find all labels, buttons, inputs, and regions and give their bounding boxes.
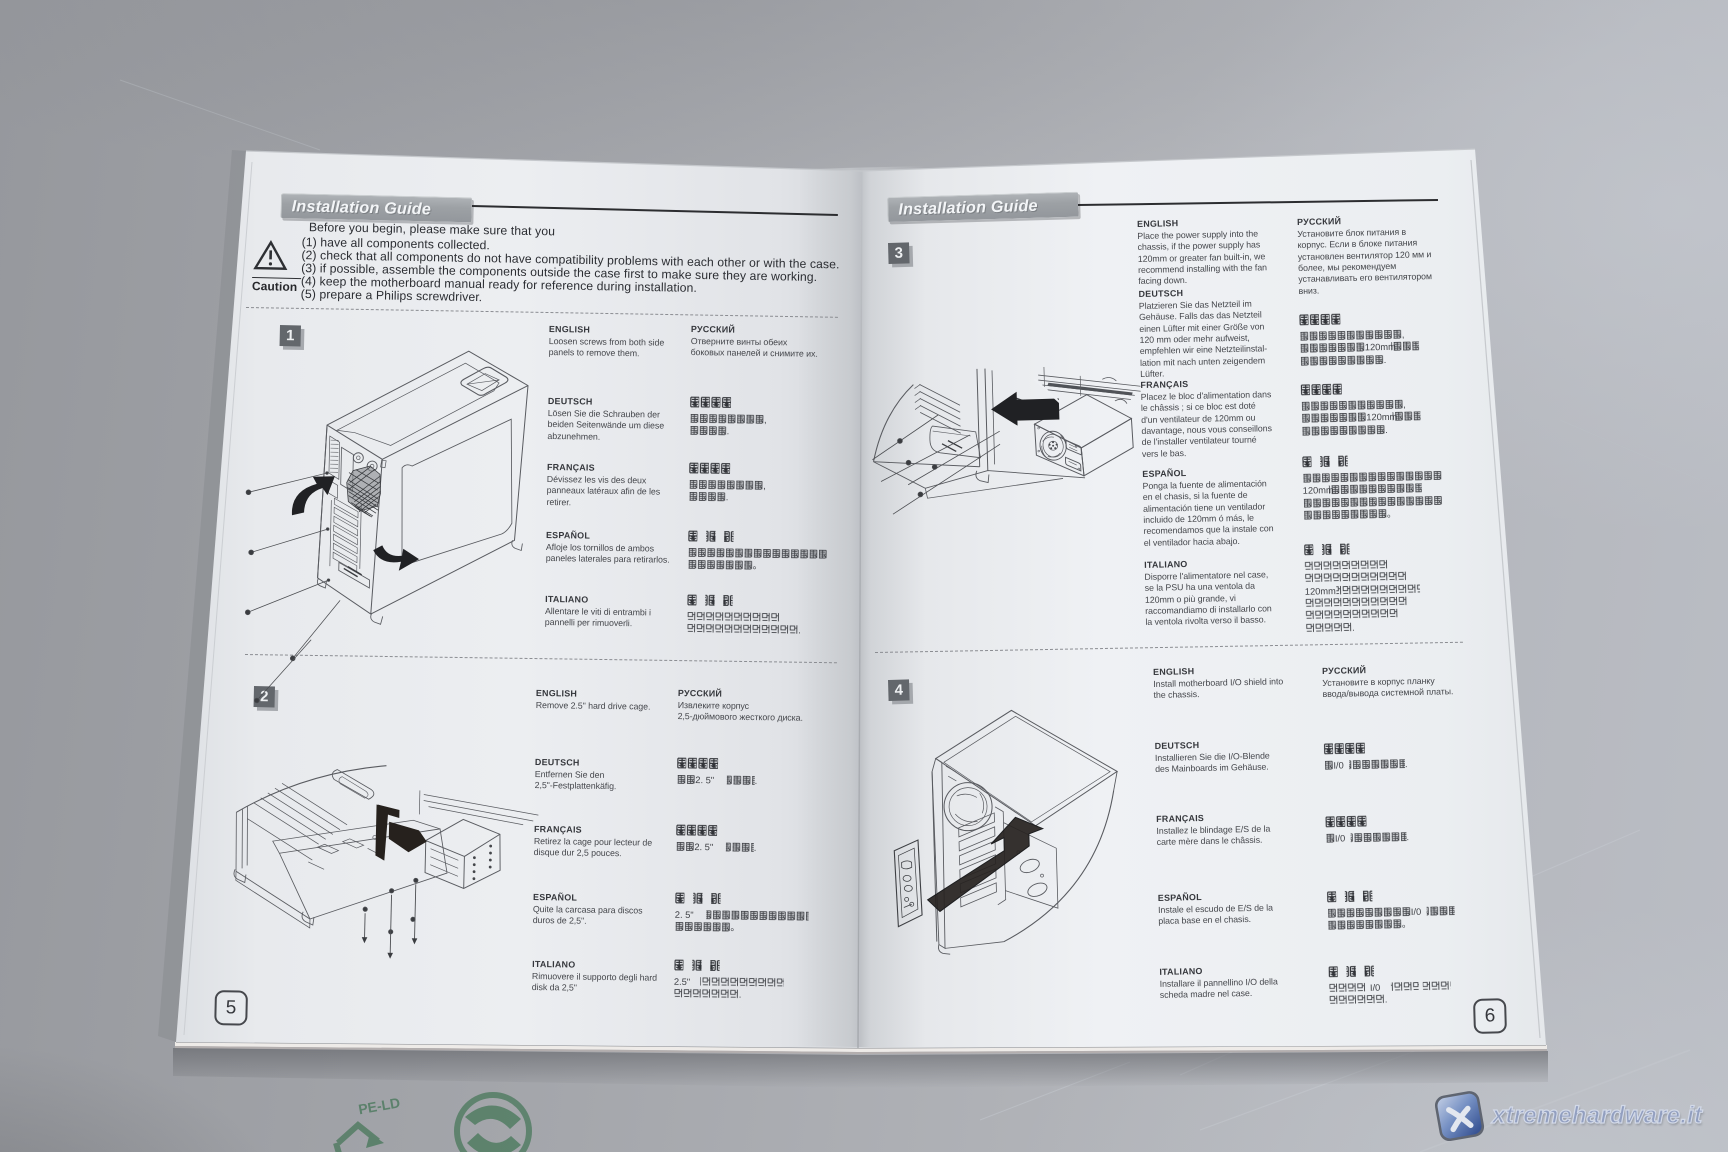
svg-text:.: . <box>1405 759 1408 769</box>
svg-text:,: , <box>763 481 766 491</box>
svg-text:120mm: 120mm <box>1365 342 1396 353</box>
svg-text:.: . <box>739 990 742 1000</box>
svg-text:120mm: 120mm <box>1305 586 1336 597</box>
svg-text:.: . <box>754 843 757 853</box>
svg-text:。: 。 <box>1402 919 1410 929</box>
svg-text:.: . <box>1385 995 1388 1005</box>
svg-text:I/0: I/0 <box>1333 760 1344 770</box>
svg-text:.: . <box>1385 425 1388 435</box>
svg-text:.: . <box>727 427 730 437</box>
svg-text:PE-LD: PE-LD <box>357 1094 401 1117</box>
svg-text:2. 5": 2. 5" <box>675 910 694 920</box>
svg-text:.: . <box>1352 623 1355 633</box>
svg-text:.: . <box>755 776 758 786</box>
svg-text:I/0: I/0 <box>1335 833 1346 843</box>
svg-text:,: , <box>1403 399 1406 409</box>
svg-text:120mm: 120mm <box>1303 485 1334 496</box>
svg-text:2.5": 2.5" <box>674 977 690 987</box>
svg-text:。: 。 <box>730 923 737 933</box>
svg-text:.: . <box>1406 832 1409 842</box>
svg-text:。: 。 <box>1387 509 1395 519</box>
svg-text:,: , <box>1402 329 1405 339</box>
svg-text:.: . <box>1384 355 1387 365</box>
svg-text:。: 。 <box>753 561 760 571</box>
svg-text:,: , <box>764 415 767 425</box>
svg-text:120mm: 120mm <box>1366 412 1397 423</box>
svg-text:2. 5": 2. 5" <box>694 842 713 852</box>
svg-text:2. 5": 2. 5" <box>695 775 714 785</box>
svg-text:I/0: I/0 <box>1370 983 1381 993</box>
svg-text:.: . <box>726 493 729 503</box>
svg-text:.: . <box>798 626 801 636</box>
svg-text:I/0: I/0 <box>1411 907 1422 917</box>
